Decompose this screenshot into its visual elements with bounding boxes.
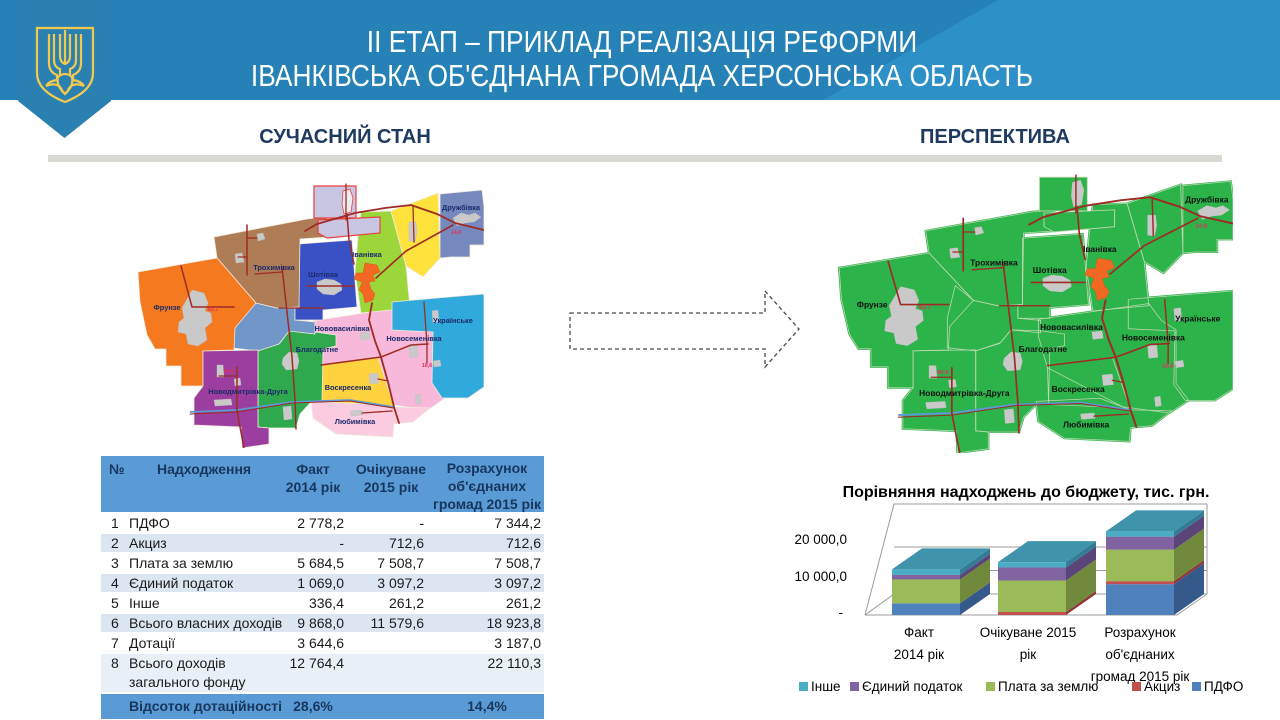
svg-text:Благодатне: Благодатне [296,345,339,354]
svg-text:40,6: 40,6 [937,370,950,376]
svg-text:Воскресенка: Воскресенка [1052,385,1106,394]
svg-text:Новосеменівка: Новосеменівка [1122,334,1185,343]
svg-text:Фрунзе: Фрунзе [857,301,888,310]
svg-text:14,8: 14,8 [1195,224,1208,230]
svg-text:Воскресенка: Воскресенка [325,383,372,392]
svg-text:Шотівка: Шотівка [308,270,339,279]
svg-text:20 000,0: 20 000,0 [794,532,847,547]
svg-text:рік: рік [1020,647,1037,662]
svg-text:ПДФО: ПДФО [1204,679,1243,694]
svg-text:Інше: Інше [811,679,841,694]
svg-text:Єдиний податок: Єдиний податок [862,679,963,694]
svg-text:Порівняння надходжень до бюдже: Порівняння надходжень до бюджету, тис. г… [843,484,1210,501]
svg-text:-: - [839,605,844,620]
svg-text:Трохимівка: Трохимівка [970,259,1018,268]
svg-text:Новосеменівка: Новосеменівка [386,334,442,343]
svg-text:Іванівка: Іванівка [352,250,382,259]
svg-text:Благодатне: Благодатне [1019,345,1068,354]
svg-text:Факт: Факт [904,625,934,640]
svg-text:40,6: 40,6 [224,369,235,375]
svg-text:Фрунзе: Фрунзе [154,303,181,312]
svg-text:Розрахунок: Розрахунок [1104,625,1175,640]
svg-text:43,7: 43,7 [208,307,219,313]
svg-text:Новодмитрівка-Друга: Новодмитрівка-Друга [919,389,1010,398]
svg-text:2014 рік: 2014 рік [894,647,944,662]
svg-text:14,8: 14,8 [451,230,462,236]
svg-text:Плата за землю: Плата за землю [998,679,1098,694]
svg-text:Любимівка: Любимівка [335,417,376,426]
svg-text:Любимівка: Любимівка [1063,421,1110,430]
svg-text:Трохимівка: Трохимівка [253,263,295,272]
svg-text:43,7: 43,7 [919,305,932,311]
svg-text:Іванівка: Іванівка [1083,245,1117,254]
svg-text:Нововасилівка: Нововасилівка [314,324,370,333]
svg-text:Очікуване 2015: Очікуване 2015 [980,625,1077,640]
svg-text:Дружбівка: Дружбівка [442,203,481,212]
svg-text:Нововасилівка: Нововасилівка [1040,323,1103,332]
svg-text:Українське: Українське [1175,315,1221,324]
svg-text:18,6: 18,6 [422,363,433,369]
svg-text:Акциз: Акциз [1144,679,1180,694]
svg-text:10 000,0: 10 000,0 [794,569,847,584]
svg-text:Новодмитрівка-Друга: Новодмитрівка-Друга [208,387,288,396]
svg-text:Дружбівка: Дружбівка [1185,196,1229,205]
svg-text:Українське: Українське [433,316,473,325]
svg-text:Шотівка: Шотівка [1033,266,1067,275]
svg-text:об'єднаних: об'єднаних [1105,647,1175,662]
svg-text:18,6: 18,6 [1162,364,1175,370]
